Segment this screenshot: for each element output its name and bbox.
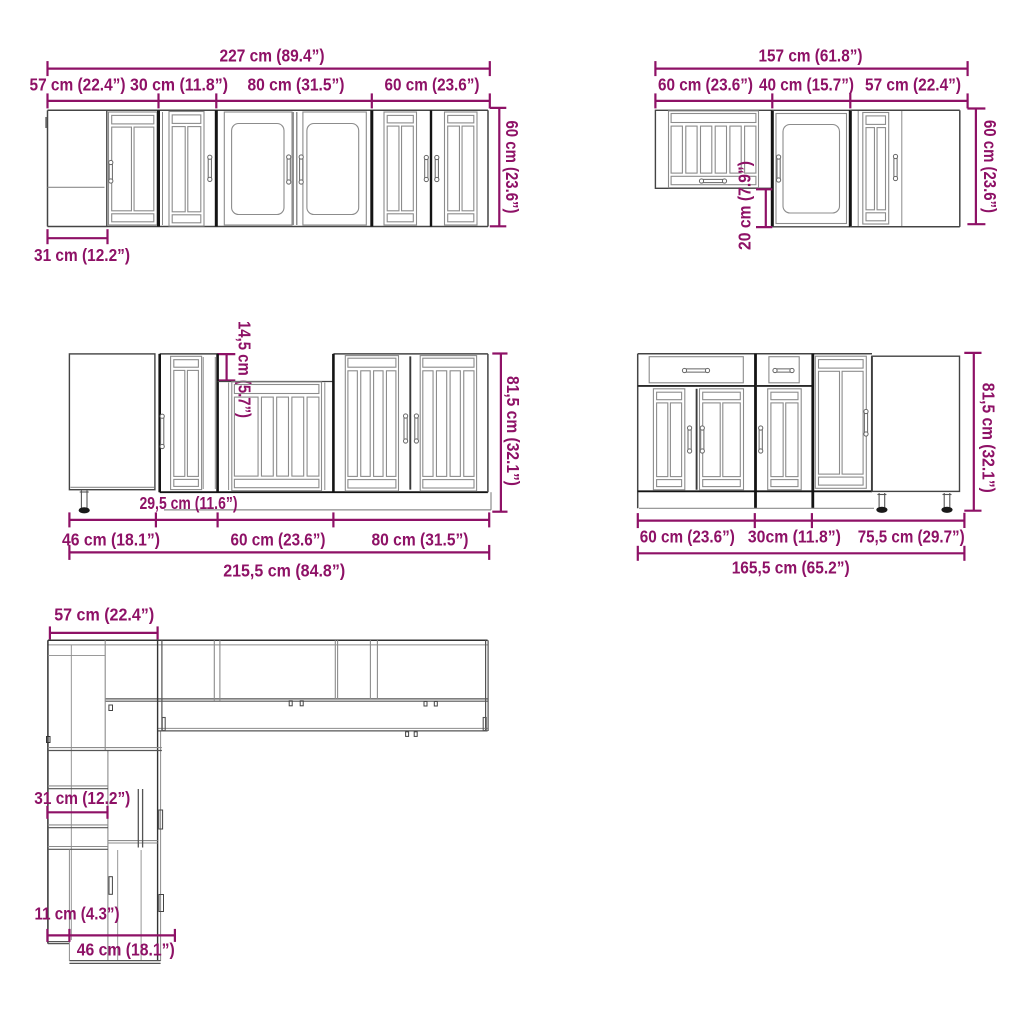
svg-text:80 cm (31.5”): 80 cm (31.5”) [248,74,345,94]
svg-text:60 cm (23.6”): 60 cm (23.6”) [502,121,522,214]
svg-text:215,5 cm (84.8”): 215,5 cm (84.8”) [223,560,345,580]
svg-text:57 cm (22.4”): 57 cm (22.4”) [30,74,126,94]
svg-text:30cm (11.8”): 30cm (11.8”) [748,526,841,546]
svg-text:20 cm (7.9”): 20 cm (7.9”) [734,161,754,250]
svg-text:227 cm (89.4”): 227 cm (89.4”) [220,46,325,66]
svg-text:60 cm (23.6”): 60 cm (23.6”) [640,526,735,546]
svg-text:46 cm (18.1”): 46 cm (18.1”) [62,530,160,550]
svg-text:46 cm (18.1”): 46 cm (18.1”) [77,940,175,960]
svg-text:80 cm (31.5”): 80 cm (31.5”) [372,530,469,550]
svg-text:31 cm (12.2”): 31 cm (12.2”) [34,245,130,265]
svg-text:81,5 cm (32.1”): 81,5 cm (32.1”) [503,376,523,486]
svg-text:31 cm (12.2”): 31 cm (12.2”) [34,788,130,808]
svg-text:81,5 cm (32.1”): 81,5 cm (32.1”) [979,383,999,493]
svg-text:60 cm (23.6”): 60 cm (23.6”) [658,74,753,94]
svg-text:30 cm (11.8”): 30 cm (11.8”) [130,74,228,94]
svg-text:29,5 cm (11.6”): 29,5 cm (11.6”) [140,493,238,513]
svg-text:57 cm (22.4”): 57 cm (22.4”) [865,74,961,94]
svg-text:60 cm (23.6”): 60 cm (23.6”) [385,74,480,94]
svg-text:40 cm (15.7”): 40 cm (15.7”) [759,74,854,94]
svg-text:157 cm (61.8”): 157 cm (61.8”) [759,46,863,66]
svg-text:60 cm (23.6”): 60 cm (23.6”) [231,530,326,550]
svg-text:75,5 cm (29.7”): 75,5 cm (29.7”) [858,526,965,546]
svg-text:165,5 cm (65.2”): 165,5 cm (65.2”) [732,558,850,578]
svg-text:57 cm (22.4”): 57 cm (22.4”) [54,605,154,625]
svg-text:14,5 cm (5.7”): 14,5 cm (5.7”) [235,321,255,418]
svg-text:11 cm (4.3”): 11 cm (4.3”) [35,903,120,923]
svg-text:60 cm (23.6”): 60 cm (23.6”) [980,120,1000,213]
